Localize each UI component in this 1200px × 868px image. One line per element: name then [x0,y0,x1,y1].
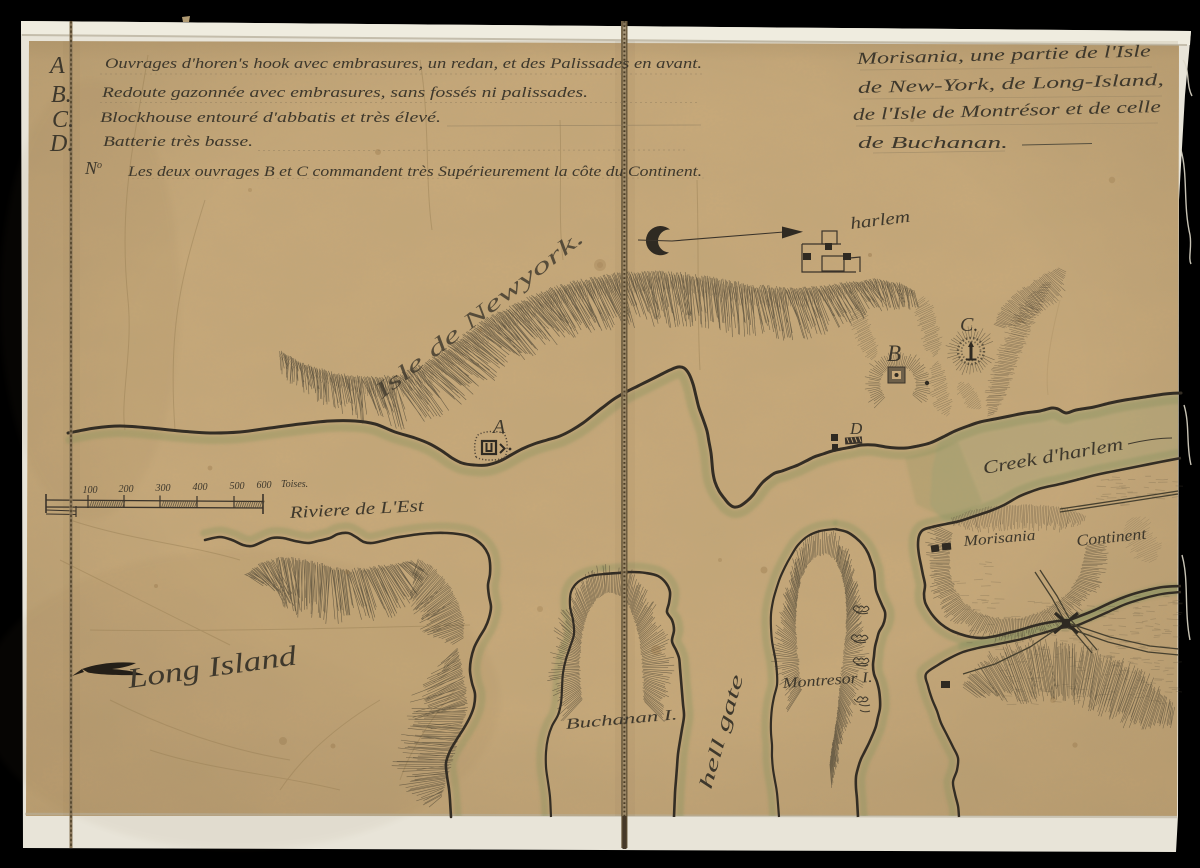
svg-text:400: 400 [193,482,208,493]
svg-text:D: D [849,419,863,438]
svg-text:D.: D. [49,131,73,157]
svg-text:500: 500 [230,481,245,492]
svg-text:B.: B. [51,82,72,108]
svg-text:A: A [491,416,506,438]
svg-text:Toises.: Toises. [281,479,308,490]
svg-text:Les deux ouvrages B et C comma: Les deux ouvrages B et C commandent très… [127,164,702,180]
svg-text:Blockhouse entouré d'abbatis e: Blockhouse entouré d'abbatis et très éle… [100,110,441,126]
svg-text:Ouvrages d'horen's hook avec e: Ouvrages d'horen's hook avec embrasures,… [105,56,702,72]
svg-text:B: B [887,341,901,366]
svg-text:Batterie très basse.: Batterie très basse. [103,134,253,150]
svg-text:de Buchanan.: de Buchanan. [858,133,1008,152]
svg-text:100: 100 [83,485,98,496]
svg-text:C.: C. [960,314,978,336]
svg-text:600: 600 [257,480,272,491]
svg-text:C.: C. [52,107,74,133]
svg-text:200: 200 [119,484,134,495]
svg-text:300: 300 [155,483,171,494]
svg-text:A: A [48,53,65,79]
svg-text:Redoute gazonnée avec embrasur: Redoute gazonnée avec embrasures, sans f… [101,85,588,101]
